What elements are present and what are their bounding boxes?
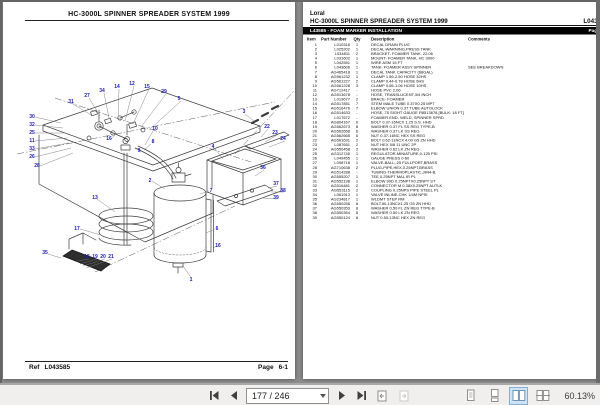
callout-number: 22: [264, 124, 270, 130]
callout-number: 36: [260, 165, 266, 171]
callout-number: 5: [178, 96, 181, 102]
next-page-button[interactable]: [336, 389, 348, 403]
callout-number: 29: [161, 89, 167, 95]
continuous-scroll-view-button[interactable]: [485, 387, 504, 405]
callout-number: 20: [100, 254, 106, 260]
callout-number: 9: [138, 148, 141, 154]
left-page: HC-3000L SPINNER SPREADER SYSTEM 1999: [3, 2, 295, 379]
callout-number: 8: [152, 139, 155, 145]
table-header-row: Item Part Number Qty Description Comment…: [303, 37, 600, 42]
page-navigation-group: [208, 387, 411, 404]
parts-page-header: HC-3000L SPINNER SPREADER SYSTEM 1999 L0…: [310, 18, 600, 27]
callout-number: 23: [272, 130, 278, 136]
callout-number: 37: [273, 181, 279, 187]
parts-table-body: 1L0103161DECAL DRAIN PLUG2L0252021DECAL-…: [303, 43, 600, 220]
page-number-input[interactable]: [246, 388, 329, 404]
callout-number: 35: [42, 250, 48, 256]
callout-number: 14: [114, 84, 120, 90]
callout-number: 2: [149, 178, 152, 184]
callout-number: 24: [280, 136, 286, 142]
last-page-button[interactable]: [355, 389, 367, 403]
callout-number: 19: [92, 254, 98, 260]
footer-rule: [25, 361, 288, 362]
callout-number: 3: [243, 109, 246, 115]
callout-number: 13: [92, 195, 98, 201]
page-dropdown-caret-icon[interactable]: [320, 394, 326, 398]
callout-number: 7: [210, 188, 213, 194]
callout-number: 25: [29, 130, 35, 136]
callout-number: 15: [144, 84, 150, 90]
brand-logo-text: Loral: [310, 10, 600, 17]
next-view-button[interactable]: [396, 388, 411, 403]
view-layout-group: 60.13%: [461, 387, 595, 404]
window-edge-top: [0, 0, 600, 2]
col-header-item: Item: [303, 37, 317, 42]
callout-number: 16: [215, 243, 221, 249]
two-page-view-button[interactable]: [509, 387, 528, 405]
callout-number: 26: [29, 154, 35, 160]
callout-number: 28: [34, 163, 40, 169]
single-page-view-button[interactable]: [461, 387, 480, 405]
window-edge-left: [0, 0, 2, 383]
section-title-bar: L43585 - FOAM MARKER INSTALLATION Page 6…: [303, 27, 600, 35]
exploded-diagram: 3032251133262831273414121529516108927616…: [3, 2, 295, 379]
callout-number: 31: [68, 99, 74, 105]
callout-number: 30: [29, 114, 35, 120]
callout-number: 12: [129, 81, 135, 87]
callout-number: 32: [29, 122, 35, 128]
callout-number: 4: [212, 144, 215, 150]
footer-page-value: 6-1: [279, 364, 288, 371]
footer-ref-value: L043585: [44, 364, 70, 371]
callout-number: 11: [29, 138, 35, 144]
window-edge-right: [596, 0, 600, 383]
footer-ref-label: Ref: [29, 364, 39, 371]
callout-number: 33: [29, 146, 35, 152]
callout-number: 17: [74, 226, 80, 232]
footer-page: Page6-1: [258, 364, 288, 371]
col-header-qty: Qty: [350, 37, 364, 42]
footer-ref: RefL043585: [29, 364, 70, 371]
callout-number: 18: [84, 254, 90, 260]
callout-number: 16: [106, 136, 112, 142]
first-page-button[interactable]: [208, 389, 220, 403]
callout-number: 1: [190, 277, 193, 283]
callout-number: 39: [273, 195, 279, 201]
table-row: 39AG5501248NUT 0.50-13NC HEX ZN REG: [303, 215, 600, 220]
right-page: Loral HC-3000L SPINNER SPREADER SYSTEM 1…: [303, 2, 600, 379]
col-header-comments: Comments: [468, 37, 600, 42]
page-field-wrap: [246, 388, 329, 404]
viewer-statusbar: 60.13%: [0, 383, 600, 405]
col-header-description: Description: [364, 37, 468, 42]
callout-number: 27: [84, 93, 90, 99]
parts-page-title: HC-3000L SPINNER SPREADER SYSTEM 1999: [310, 18, 448, 25]
previous-page-button[interactable]: [227, 389, 239, 403]
footer-page-label: Page: [258, 364, 274, 371]
two-page-continuous-view-button[interactable]: [533, 387, 552, 405]
pdf-viewer-canvas: HC-3000L SPINNER SPREADER SYSTEM 1999: [0, 0, 600, 383]
section-title: L43585 - FOAM MARKER INSTALLATION: [310, 28, 402, 34]
callout-number: 6: [216, 226, 219, 232]
previous-view-button[interactable]: [374, 388, 389, 403]
col-header-part-number: Part Number: [317, 37, 350, 42]
zoom-level-label: 60.13%: [564, 391, 595, 401]
callout-number: 38: [280, 188, 286, 194]
callout-number: 21: [108, 254, 114, 260]
callout-number: 10: [152, 126, 158, 132]
callout-number: 34: [99, 88, 105, 94]
